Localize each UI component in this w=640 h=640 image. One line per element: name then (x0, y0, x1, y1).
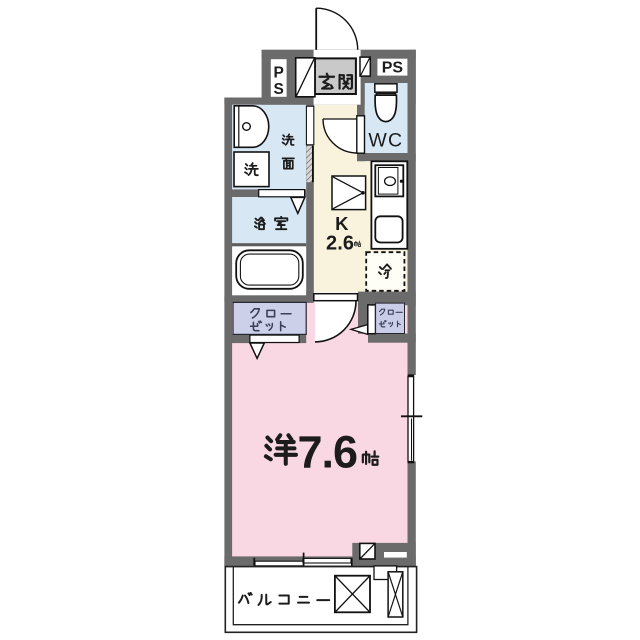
svg-text:K: K (335, 213, 349, 234)
svg-text:WC: WC (368, 130, 403, 152)
svg-text:PS: PS (382, 60, 404, 77)
svg-text:P: P (274, 64, 284, 81)
svg-text:2.6: 2.6 (326, 232, 354, 254)
svg-text:7.6: 7.6 (298, 426, 359, 477)
svg-text:S: S (274, 81, 284, 98)
